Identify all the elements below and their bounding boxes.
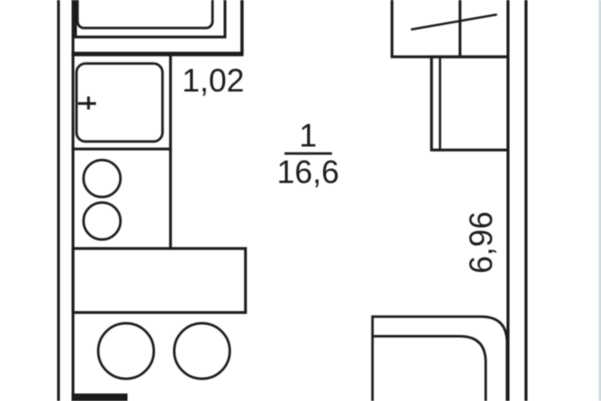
svg-text:1,02: 1,02	[182, 63, 244, 99]
svg-text:16,6: 16,6	[277, 154, 339, 190]
svg-text:1: 1	[299, 118, 317, 154]
svg-text:6,96: 6,96	[463, 211, 499, 273]
